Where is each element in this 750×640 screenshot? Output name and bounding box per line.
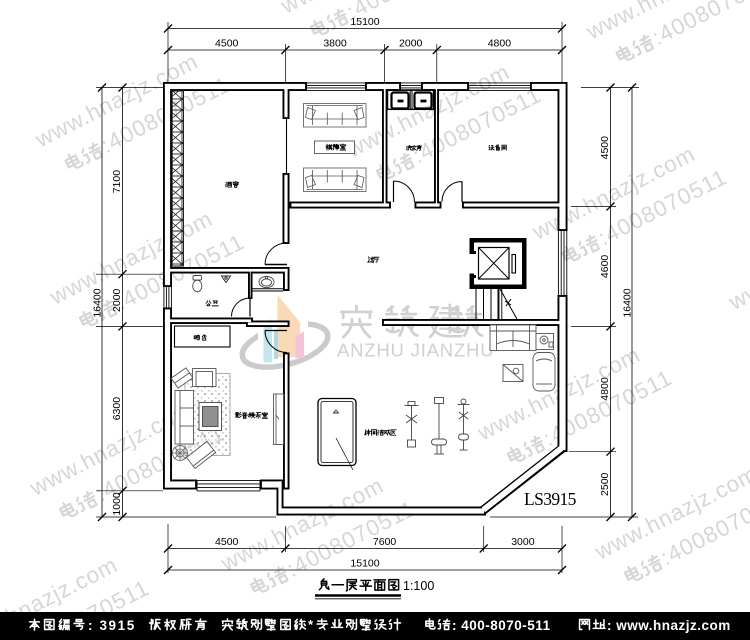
- svg-text:4500: 4500: [215, 38, 239, 50]
- svg-text:2000: 2000: [399, 38, 423, 50]
- svg-text:1000: 1000: [111, 492, 123, 516]
- svg-text:1:100: 1:100: [403, 579, 434, 593]
- svg-text:7100: 7100: [111, 170, 123, 194]
- svg-text:2500: 2500: [599, 472, 611, 496]
- svg-text:4500: 4500: [215, 536, 239, 548]
- svg-text:: www.hnazjz.com: : www.hnazjz.com: [607, 618, 731, 633]
- svg-text:4600: 4600: [599, 255, 611, 279]
- svg-text:2000: 2000: [111, 288, 123, 312]
- svg-text:7600: 7600: [373, 536, 397, 548]
- svg-text:4800: 4800: [488, 38, 512, 50]
- svg-text:3800: 3800: [323, 38, 347, 50]
- svg-text:6300: 6300: [111, 397, 123, 421]
- svg-text:4800: 4800: [599, 377, 611, 401]
- svg-text:ANZHU JIANZHU: ANZHU JIANZHU: [337, 340, 494, 361]
- svg-text:4500: 4500: [599, 136, 611, 160]
- svg-text:3000: 3000: [511, 536, 535, 548]
- svg-text:: 400-8070-511: : 400-8070-511: [452, 618, 551, 633]
- svg-text:16400: 16400: [622, 288, 634, 317]
- svg-text:15100: 15100: [350, 16, 379, 28]
- svg-text:16400: 16400: [92, 288, 104, 317]
- svg-text:15100: 15100: [350, 558, 379, 570]
- svg-text:: 3915: : 3915: [88, 618, 136, 633]
- svg-text:LS3915: LS3915: [524, 489, 577, 509]
